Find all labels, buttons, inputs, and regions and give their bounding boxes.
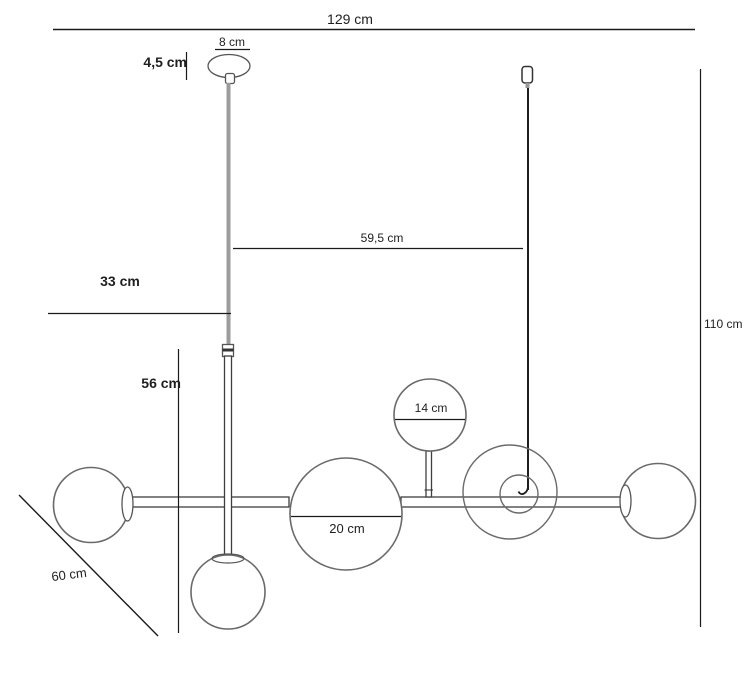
label-cord-spacing: 59,5 cm: [342, 231, 422, 245]
label-right-drop: 110 cm: [704, 317, 748, 331]
horizontal-bar-right: [401, 497, 622, 507]
globe-middle-outer: [463, 445, 557, 539]
pendant-lamp-dimension-drawing: 129 cm 8 cm 4,5 cm 33 cm 59,5 cm 110 cm …: [0, 0, 752, 684]
label-canopy-height: 4,5 cm: [107, 54, 187, 71]
drawing-lines: [0, 0, 752, 684]
label-center-drop: 56 cm: [101, 375, 181, 392]
cord-anchor-taper: [526, 83, 530, 88]
center-rod: [225, 356, 232, 558]
horizontal-bar-left: [130, 497, 289, 507]
canopy-cord-connector: [226, 74, 235, 84]
label-small-globe: 14 cm: [396, 401, 466, 415]
suspension-cord-left: [227, 83, 231, 345]
label-total-width: 129 cm: [300, 11, 400, 28]
label-canopy-diameter: 8 cm: [207, 35, 257, 49]
globe-large: [290, 458, 402, 570]
globe-left-fitting: [122, 487, 133, 521]
globe-right: [621, 464, 696, 539]
globe-bottom: [191, 555, 265, 629]
globe-right-fitting: [620, 485, 631, 517]
label-large-globe: 20 cm: [312, 521, 382, 537]
label-stem-height: 33 cm: [80, 273, 160, 290]
cord-end-hook: [519, 486, 529, 494]
collar-band: [223, 349, 234, 352]
cord-anchor-right: [522, 67, 533, 84]
globe-left: [54, 468, 129, 543]
